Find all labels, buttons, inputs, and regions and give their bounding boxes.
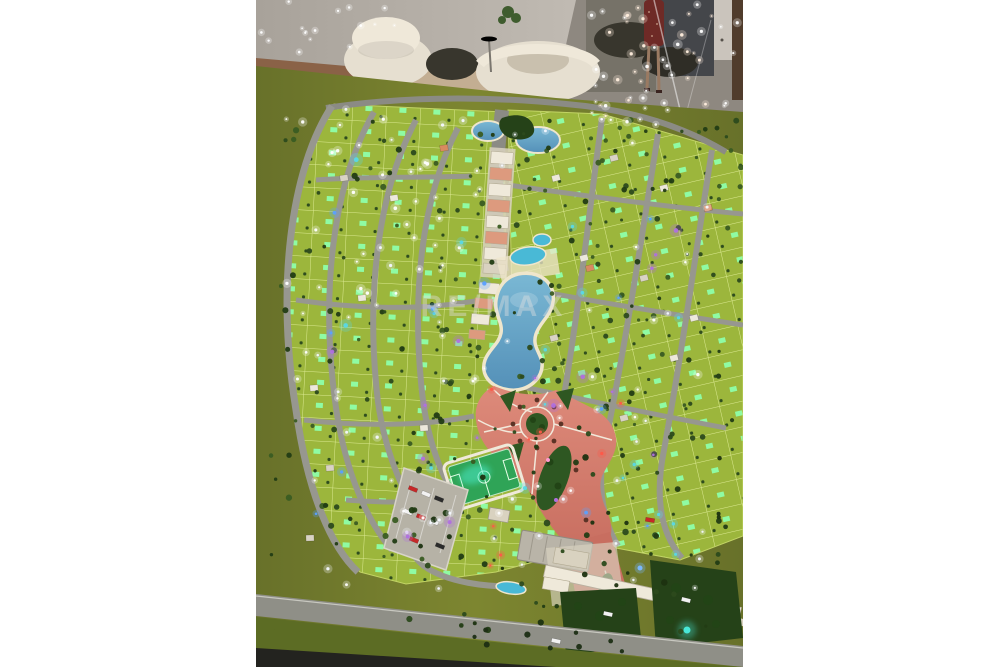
model-scene <box>256 0 743 667</box>
model-house <box>390 194 399 201</box>
lake-highlight <box>510 292 538 308</box>
dark-wall-edge <box>732 0 743 100</box>
model-house <box>306 535 314 541</box>
dark-ottoman <box>426 48 478 80</box>
scale-model-photo: RE/MAX <box>256 0 743 667</box>
door-handle <box>721 39 724 42</box>
model-house <box>420 425 428 432</box>
side-table-top <box>481 37 497 42</box>
model-house <box>440 144 449 151</box>
white-door <box>714 0 732 60</box>
page-background: RE/MAX <box>0 0 1000 667</box>
model-house <box>340 174 349 181</box>
model-house <box>326 465 334 472</box>
